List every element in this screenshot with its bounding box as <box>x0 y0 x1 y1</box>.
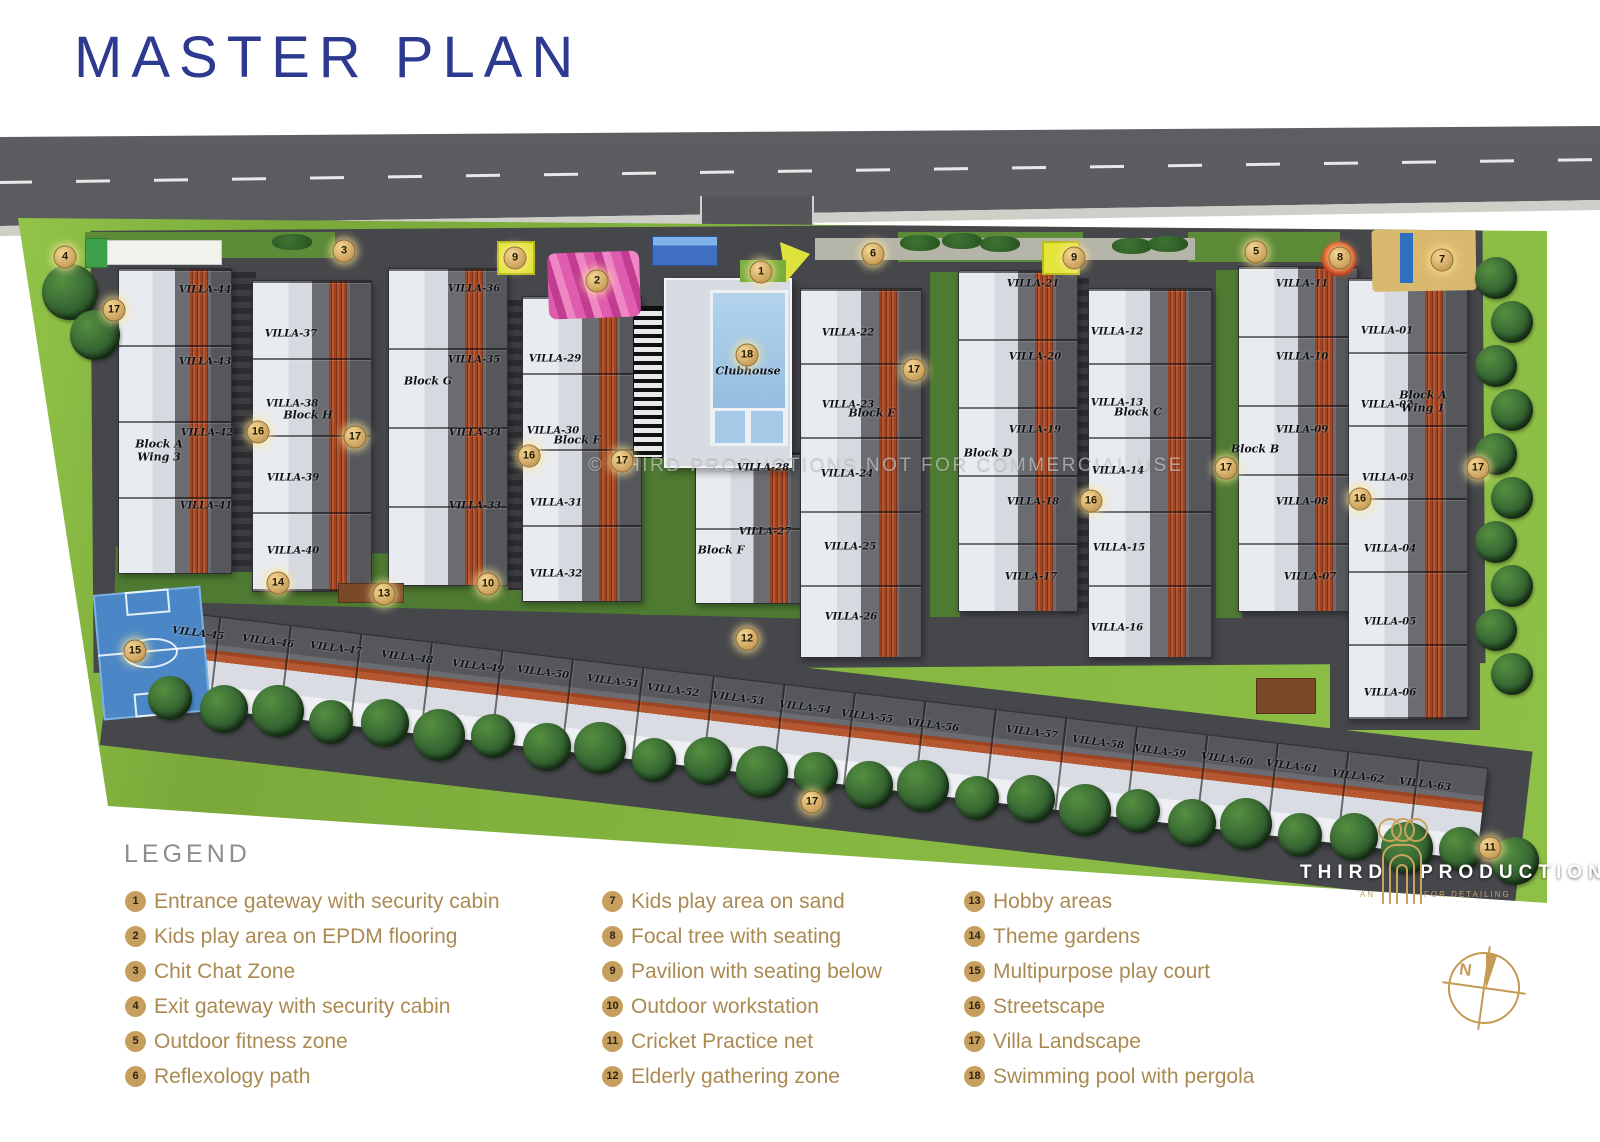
legend-item: 8Focal tree with seating <box>602 919 882 954</box>
logo-sub-an: AN <box>1360 890 1375 899</box>
legend-item-number: 11 <box>602 1031 623 1052</box>
villa-label: VILLA-35 <box>448 354 500 366</box>
plan-marker-16: 16 <box>519 446 540 467</box>
legend-column-2: 7Kids play area on sand8Focal tree with … <box>602 884 882 1094</box>
villa-label: VILLA-12 <box>1091 326 1143 338</box>
legend-item-label: Outdoor fitness zone <box>154 1030 348 1054</box>
legend-item-number: 8 <box>602 926 623 947</box>
legend-item: 9Pavilion with seating below <box>602 954 882 989</box>
villa-label: VILLA-40 <box>267 545 319 557</box>
legend-item-number: 12 <box>602 1066 623 1087</box>
legend-item-number: 16 <box>964 996 985 1017</box>
villa-label: VILLA-11 <box>1276 278 1328 290</box>
legend-item: 1Entrance gateway with security cabin <box>125 884 500 919</box>
north-compass-icon: N <box>1443 947 1524 1028</box>
logo-word-production: PRODUCTION <box>1420 862 1600 884</box>
villa-label: VILLA-01 <box>1361 325 1413 337</box>
villa-label: VILLA-42 <box>181 427 233 439</box>
legend-item-label: Outdoor workstation <box>631 995 819 1019</box>
plan-marker-17: 17 <box>1216 458 1237 479</box>
block-label: Block F <box>554 435 601 448</box>
block-label: Block E <box>848 408 895 421</box>
legend-item: 11Cricket Practice net <box>602 1024 882 1059</box>
legend-item-label: Theme gardens <box>993 925 1140 949</box>
legend-item-number: 5 <box>125 1031 146 1052</box>
legend-item-label: Streetscape <box>993 995 1105 1019</box>
villa-label: VILLA-61 <box>1265 758 1318 776</box>
villa-label: VILLA-37 <box>265 328 317 340</box>
legend-column-1: 1Entrance gateway with security cabin2Ki… <box>125 884 500 1094</box>
legend-item-label: Elderly gathering zone <box>631 1065 840 1089</box>
plan-marker-9: 9 <box>1064 248 1085 269</box>
villa-label: VILLA-03 <box>1362 472 1414 484</box>
villa-label: VILLA-07 <box>1284 571 1336 583</box>
third-production-logo: THIRD PRODUCTION AN FOR DETAILING <box>1296 814 1600 910</box>
villa-label: VILLA-47 <box>309 640 362 658</box>
legend-item-label: Swimming pool with pergola <box>993 1065 1254 1089</box>
villa-label: VILLA-26 <box>825 611 877 623</box>
villa-label: VILLA-32 <box>530 568 582 580</box>
villa-label: VILLA-16 <box>1091 622 1143 634</box>
legend-item-label: Pavilion with seating below <box>631 960 882 984</box>
plan-marker-8: 8 <box>1330 248 1351 269</box>
legend-item-number: 1 <box>125 891 146 912</box>
legend-item-label: Villa Landscape <box>993 1030 1141 1054</box>
plan-marker-10: 10 <box>478 574 499 595</box>
villa-label: VILLA-14 <box>1092 465 1144 477</box>
block-label: Block H <box>283 410 332 423</box>
block-label: Block AWing 3 <box>135 438 183 463</box>
plan-marker-5: 5 <box>1246 242 1267 263</box>
legend-item-label: Exit gateway with security cabin <box>154 995 450 1019</box>
villa-label: VILLA-10 <box>1276 351 1328 363</box>
villa-label: VILLA-62 <box>1331 768 1384 786</box>
plan-marker-17: 17 <box>904 360 925 381</box>
legend-item-number: 15 <box>964 961 985 982</box>
legend-item-label: Hobby areas <box>993 890 1112 914</box>
legend-column-3: 13Hobby areas14Theme gardens15Multipurpo… <box>964 884 1254 1094</box>
master-plan-page: { "page": {"title": "MASTER PLAN"}, "wat… <box>0 0 1600 1142</box>
villa-label: VILLA-22 <box>822 327 874 339</box>
villa-label: VILLA-29 <box>529 353 581 365</box>
plan-marker-2: 2 <box>587 271 608 292</box>
legend-item-number: 2 <box>125 926 146 947</box>
legend-item-number: 17 <box>964 1031 985 1052</box>
legend-item-label: Focal tree with seating <box>631 925 841 949</box>
villa-label: VILLA-27 <box>739 526 791 538</box>
villa-label: VILLA-59 <box>1133 743 1186 761</box>
villa-label: VILLA-50 <box>516 664 569 682</box>
block-label: Block AWing 1 <box>1399 389 1447 414</box>
legend-item: 13Hobby areas <box>964 884 1254 919</box>
legend-item: 6Reflexology path <box>125 1059 500 1094</box>
legend-item-label: Kids play area on EPDM flooring <box>154 925 458 949</box>
legend-item: 17Villa Landscape <box>964 1024 1254 1059</box>
plan-marker-7: 7 <box>1432 250 1453 271</box>
villa-label: VILLA-09 <box>1276 424 1328 436</box>
logo-arch-icon <box>1396 864 1408 904</box>
legend-item-number: 10 <box>602 996 623 1017</box>
legend-item-number: 4 <box>125 996 146 1017</box>
villa-label: VILLA-41 <box>180 500 232 512</box>
block-label: Block B <box>1231 444 1279 457</box>
legend-item-number: 6 <box>125 1066 146 1087</box>
plan-marker-17: 17 <box>1468 458 1489 479</box>
legend-item: 5Outdoor fitness zone <box>125 1024 500 1059</box>
plan-marker-12: 12 <box>737 629 758 650</box>
plan-marker-18: 18 <box>737 345 758 366</box>
block-label: Block D <box>964 448 1013 461</box>
plan-marker-4: 4 <box>55 247 76 268</box>
villa-label: VILLA-31 <box>530 497 582 509</box>
plan-marker-1: 1 <box>751 262 772 283</box>
villa-label: VILLA-20 <box>1009 351 1061 363</box>
villa-label: VILLA-28 <box>737 462 789 474</box>
plan-marker-16: 16 <box>1081 491 1102 512</box>
villa-label: VILLA-04 <box>1364 543 1416 555</box>
block-label: Block C <box>1114 407 1162 420</box>
legend-item-label: Multipurpose play court <box>993 960 1210 984</box>
legend-item: 4Exit gateway with security cabin <box>125 989 500 1024</box>
legend-item-label: Kids play area on sand <box>631 890 845 914</box>
legend-item-label: Entrance gateway with security cabin <box>154 890 500 914</box>
villa-label: VILLA-19 <box>1009 424 1061 436</box>
villa-label: VILLA-55 <box>840 708 893 726</box>
legend-item-number: 18 <box>964 1066 985 1087</box>
villa-label: VILLA-05 <box>1364 616 1416 628</box>
legend-item-number: 13 <box>964 891 985 912</box>
plan-marker-15: 15 <box>125 641 146 662</box>
legend-item-number: 9 <box>602 961 623 982</box>
villa-label: VILLA-60 <box>1200 751 1253 769</box>
villa-label: VILLA-49 <box>451 658 504 676</box>
plan-marker-16: 16 <box>1350 489 1371 510</box>
block-label: Block G <box>404 376 452 389</box>
legend-item-number: 3 <box>125 961 146 982</box>
legend-item-number: 7 <box>602 891 623 912</box>
plan-marker-3: 3 <box>334 241 355 262</box>
villa-label: VILLA-46 <box>241 633 294 651</box>
legend-item: 15Multipurpose play court <box>964 954 1254 989</box>
logo-sub-for-detailing: FOR DETAILING <box>1424 890 1511 899</box>
legend-item-number: 14 <box>964 926 985 947</box>
legend-item-label: Chit Chat Zone <box>154 960 295 984</box>
legend-item: 7Kids play area on sand <box>602 884 882 919</box>
plan-marker-14: 14 <box>268 573 289 594</box>
villa-label: VILLA-57 <box>1005 724 1058 742</box>
plan-marker-17: 17 <box>345 427 366 448</box>
plan-marker-6: 6 <box>863 244 884 265</box>
villa-label: VILLA-48 <box>380 649 433 667</box>
block-label: Block F <box>698 545 745 558</box>
villa-label: VILLA-51 <box>586 673 639 691</box>
villa-label: VILLA-36 <box>448 283 500 295</box>
villa-label: VILLA-53 <box>711 690 764 708</box>
villa-label: VILLA-21 <box>1007 278 1059 290</box>
villa-label: VILLA-44 <box>179 284 231 296</box>
villa-label: VILLA-58 <box>1071 734 1124 752</box>
plan-marker-17: 17 <box>802 792 823 813</box>
plan-marker-9: 9 <box>505 248 526 269</box>
legend-item-label: Reflexology path <box>154 1065 310 1089</box>
block-label: Clubhouse <box>715 366 780 379</box>
plan-marker-17: 17 <box>104 300 125 321</box>
villa-label: VILLA-18 <box>1007 496 1059 508</box>
villa-label: VILLA-63 <box>1398 776 1451 794</box>
villa-label: VILLA-34 <box>449 427 501 439</box>
logo-word-third: THIRD <box>1300 862 1388 884</box>
villa-label: VILLA-56 <box>906 717 959 735</box>
plan-marker-16: 16 <box>248 422 269 443</box>
villa-label: VILLA-25 <box>824 541 876 553</box>
legend-item: 3Chit Chat Zone <box>125 954 500 989</box>
villa-label: VILLA-15 <box>1093 542 1145 554</box>
villa-label: VILLA-06 <box>1364 687 1416 699</box>
villa-label: VILLA-45 <box>171 625 224 643</box>
legend-heading: LEGEND <box>124 840 251 869</box>
legend-item: 18Swimming pool with pergola <box>964 1059 1254 1094</box>
villa-label: VILLA-08 <box>1276 496 1328 508</box>
villa-label: VILLA-39 <box>267 472 319 484</box>
villa-label: VILLA-17 <box>1005 571 1057 583</box>
legend-item: 12Elderly gathering zone <box>602 1059 882 1094</box>
legend-item-label: Cricket Practice net <box>631 1030 813 1054</box>
villa-label: VILLA-54 <box>778 699 831 717</box>
logo-ring-icon <box>1404 818 1428 842</box>
legend-item: 2Kids play area on EPDM flooring <box>125 919 500 954</box>
plan-marker-17: 17 <box>612 451 633 472</box>
plan-marker-13: 13 <box>374 584 395 605</box>
villa-label: VILLA-24 <box>821 468 873 480</box>
villa-label: VILLA-52 <box>646 682 699 700</box>
legend-item: 16Streetscape <box>964 989 1254 1024</box>
villa-label: VILLA-43 <box>179 356 231 368</box>
legend-item: 14Theme gardens <box>964 919 1254 954</box>
legend-item: 10Outdoor workstation <box>602 989 882 1024</box>
villa-label: VILLA-33 <box>449 500 501 512</box>
